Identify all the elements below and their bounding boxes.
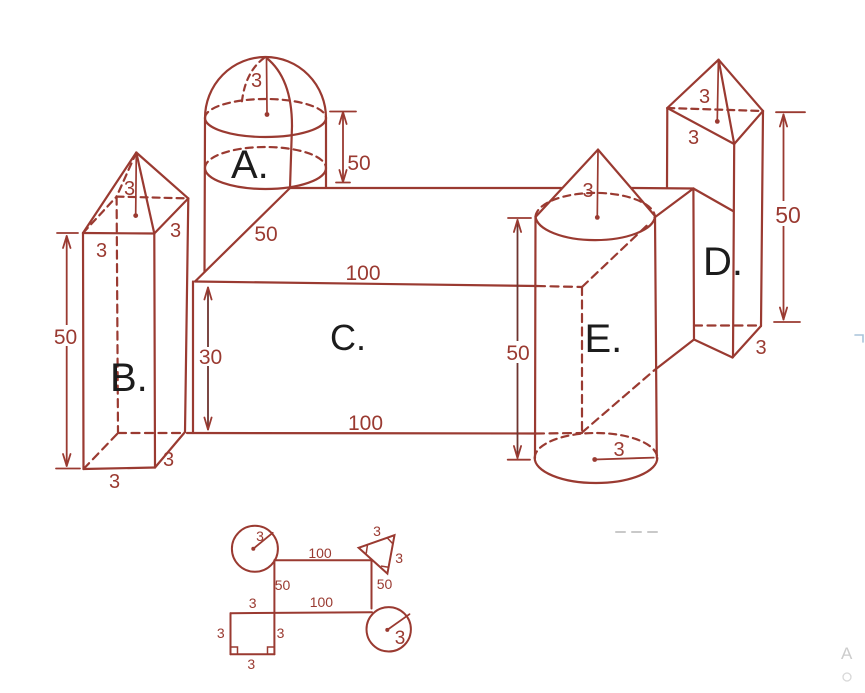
svg-text:100: 100 [308,545,332,561]
svg-text:3: 3 [277,625,285,641]
svg-text:3: 3 [249,595,257,611]
svg-text:3: 3 [699,86,710,108]
svg-text:3: 3 [170,220,181,242]
svg-text:50: 50 [347,152,370,175]
svg-text:3: 3 [109,471,120,493]
svg-text:3: 3 [217,625,225,641]
svg-text:3: 3 [395,550,403,566]
svg-text:3: 3 [755,337,766,359]
svg-text:C.: C. [330,317,366,358]
svg-text:A: A [841,644,853,663]
svg-text:3: 3 [163,449,174,471]
svg-text:50: 50 [275,577,291,593]
svg-text:100: 100 [348,412,383,435]
svg-text:A.: A. [231,143,269,187]
svg-text:100: 100 [345,262,380,285]
svg-text:3: 3 [688,127,699,149]
svg-text:50: 50 [506,342,529,365]
svg-text:3: 3 [613,439,624,461]
svg-text:100: 100 [310,594,334,610]
svg-text:3: 3 [373,523,381,539]
svg-text:B.: B. [110,356,148,400]
svg-text:3: 3 [247,656,255,672]
svg-text:3: 3 [582,180,593,202]
svg-text:50: 50 [775,202,801,228]
svg-text:3: 3 [251,70,262,92]
svg-text:50: 50 [254,223,277,246]
svg-text:3: 3 [124,178,135,200]
svg-text:E.: E. [585,317,623,361]
svg-text:50: 50 [54,326,77,349]
svg-text:D.: D. [703,240,743,284]
svg-text:3: 3 [96,240,107,262]
svg-text:50: 50 [377,576,393,592]
svg-text:30: 30 [199,346,222,369]
